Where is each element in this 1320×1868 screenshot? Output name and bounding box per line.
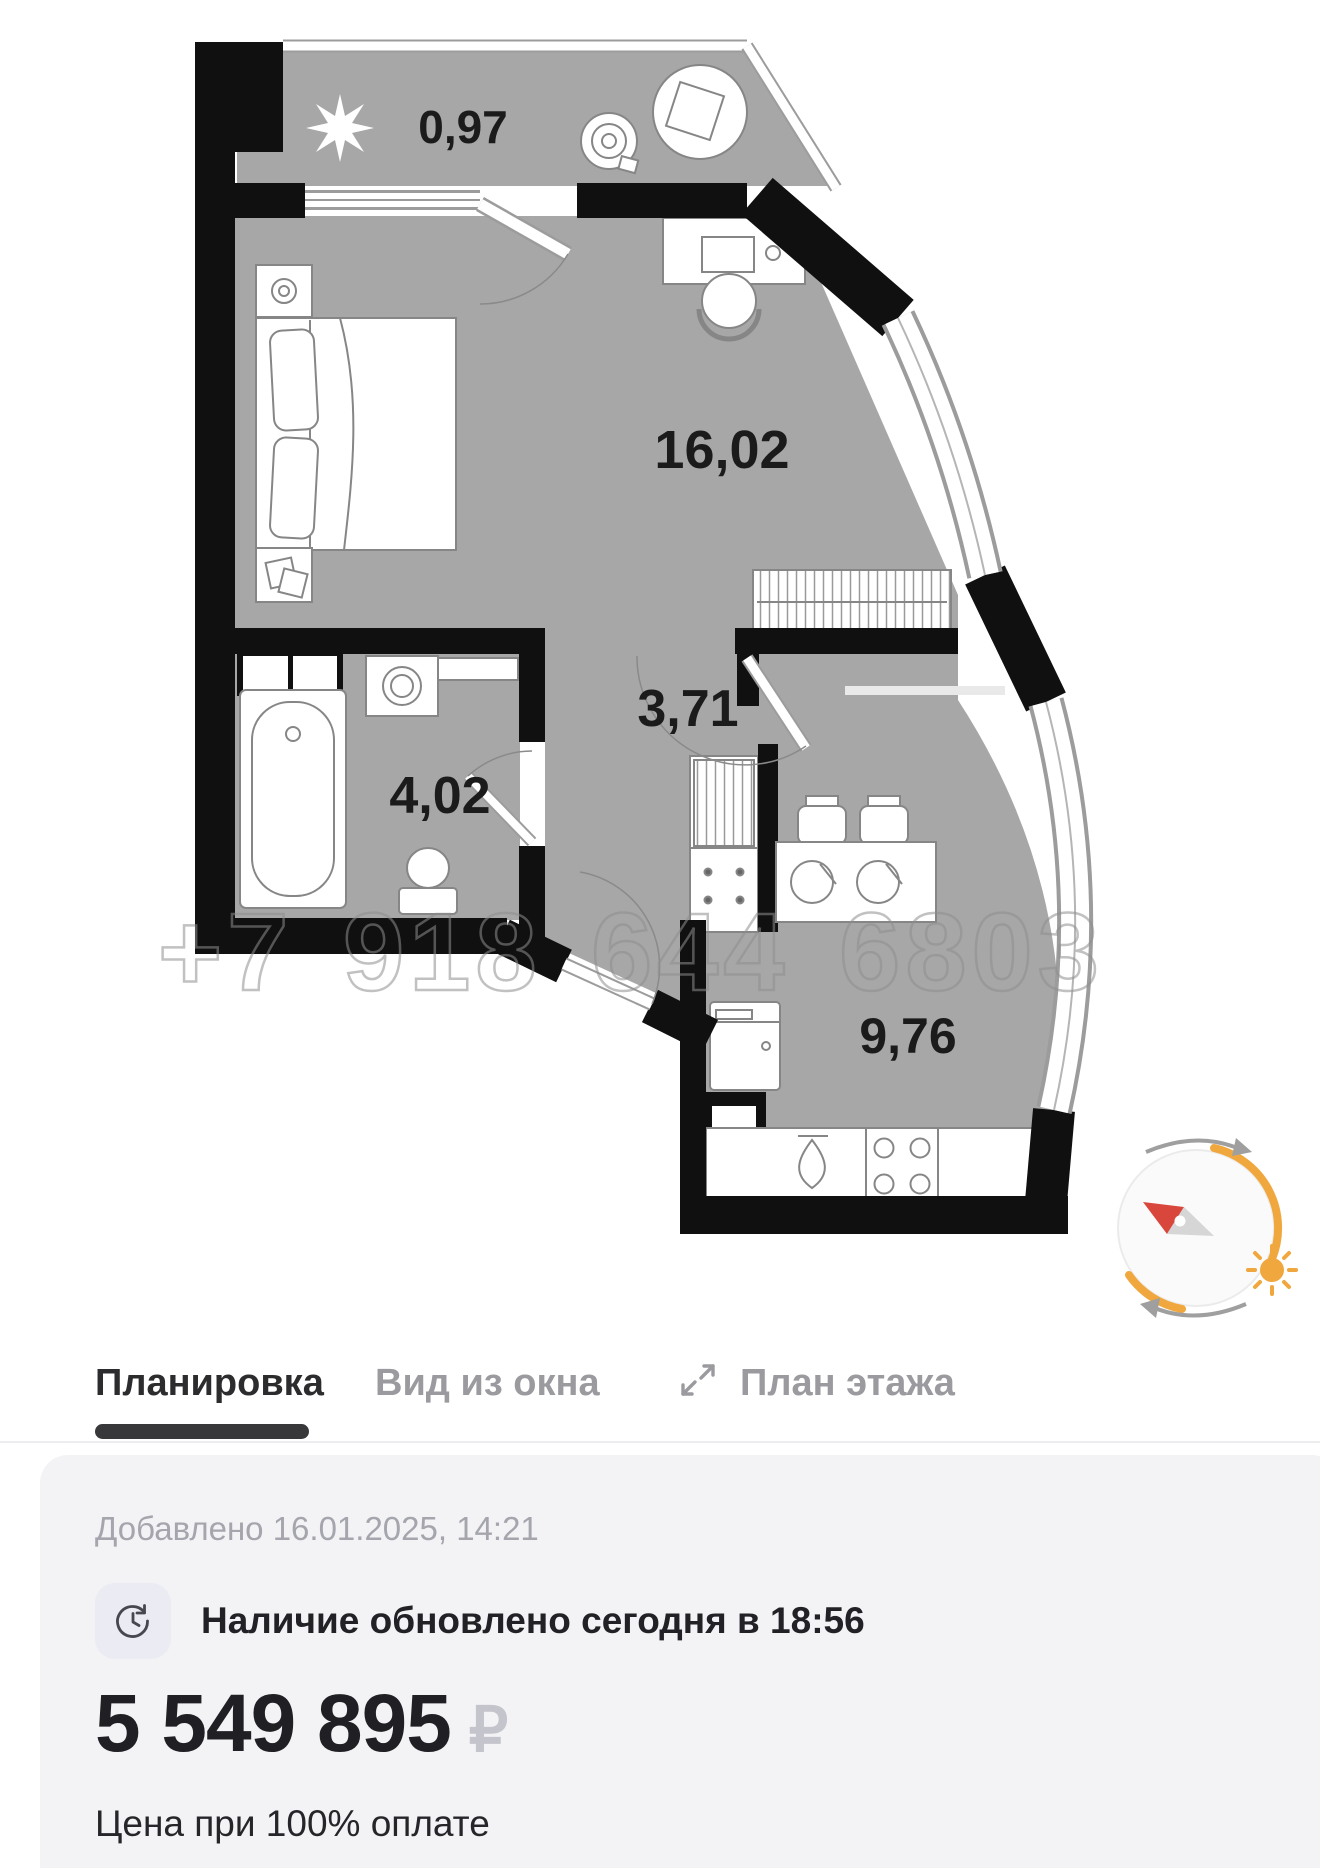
compass-sun-widget[interactable] <box>1118 1138 1296 1318</box>
active-tab-underline <box>95 1424 309 1439</box>
listing-info-card: Добавлено 16.01.2025, 14:21 Наличие обно… <box>40 1455 1320 1868</box>
floor-plan: 0,97 16,02 3,71 4,02 9,76 +7 918 644 680… <box>0 0 1320 1340</box>
washing-machine <box>366 656 438 716</box>
ruble-sign: ₽ <box>469 1693 508 1766</box>
watermark-phone: +7 918 644 6803 <box>158 891 1104 1014</box>
availability-row: Наличие обновлено сегодня в 18:56 <box>95 1583 865 1659</box>
area-label-kitchen: 9,76 <box>859 1008 956 1064</box>
sun-icon <box>1248 1246 1296 1294</box>
bath-sink <box>438 658 518 680</box>
kitchen-counter <box>706 1128 1046 1202</box>
monitor <box>702 237 754 272</box>
tab-window-view[interactable]: Вид из окна <box>375 1362 600 1405</box>
nightstand <box>256 265 312 317</box>
price-row: 5 549 895 ₽ <box>95 1677 508 1771</box>
price-note: Цена при 100% оплате <box>95 1803 490 1845</box>
area-label-hall: 3,71 <box>637 680 738 738</box>
clock-refresh-icon <box>111 1599 155 1643</box>
divider <box>0 1441 1320 1443</box>
plant-icon <box>306 94 374 162</box>
tab-layout[interactable]: Планировка <box>95 1362 324 1405</box>
tab-bar: Планировка Вид из окна План этажа <box>0 1338 1320 1455</box>
tab-floor-plan[interactable]: План этажа <box>740 1362 955 1405</box>
availability-text: Наличие обновлено сегодня в 18:56 <box>201 1600 865 1642</box>
expand-icon[interactable] <box>676 1358 720 1402</box>
area-label-room: 16,02 <box>654 420 789 480</box>
availability-clock-badge <box>95 1583 171 1659</box>
area-label-bathroom: 4,02 <box>389 767 490 825</box>
desk-chair <box>702 274 756 328</box>
toilet <box>407 848 449 888</box>
added-date: Добавлено 16.01.2025, 14:21 <box>95 1510 539 1548</box>
price-value: 5 549 895 <box>95 1677 451 1771</box>
area-label-balcony: 0,97 <box>418 101 508 153</box>
